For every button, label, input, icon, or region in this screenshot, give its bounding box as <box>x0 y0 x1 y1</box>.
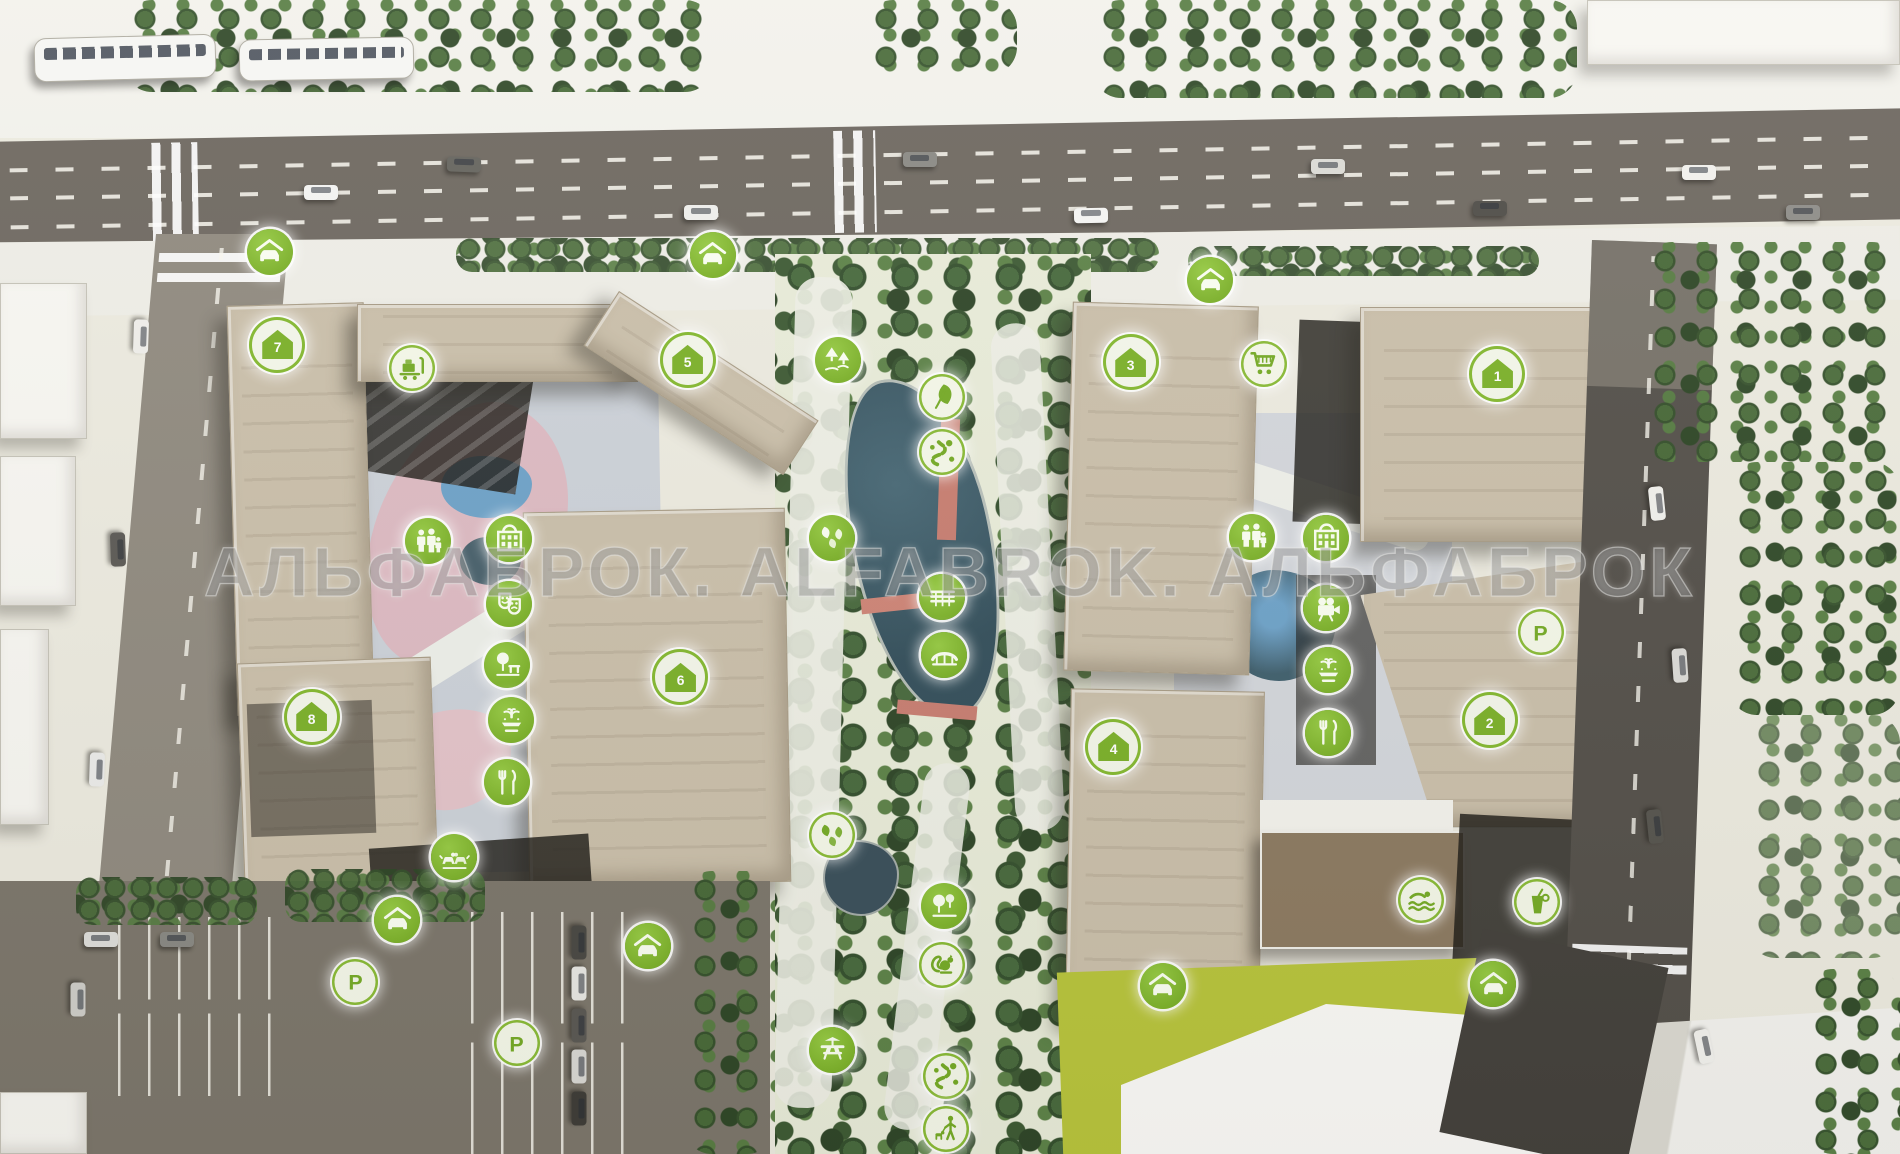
marker-covered-parking <box>1470 961 1516 1007</box>
marker-fountain <box>1305 647 1351 693</box>
marker-building-8: 8 <box>284 689 340 745</box>
marker-trail <box>923 1053 969 1099</box>
svg-text:3: 3 <box>1127 357 1135 373</box>
marker-trail <box>919 429 965 475</box>
marker-building-3: 3 <box>1103 334 1159 390</box>
marker-building-2: 2 <box>1462 692 1518 748</box>
marker-dog-walk <box>923 1106 969 1152</box>
svg-text:P: P <box>510 1032 524 1056</box>
marker-bridge <box>921 632 967 678</box>
marker-covered-parking <box>374 897 420 943</box>
svg-text:5: 5 <box>684 355 692 371</box>
marker-building-5: 5 <box>660 332 716 388</box>
marker-shopping-cart <box>1241 341 1287 387</box>
marker-covered-parking <box>1187 257 1233 303</box>
svg-text:P: P <box>1534 621 1548 645</box>
marker-building-1: 1 <box>1469 346 1525 402</box>
marker-building-6: 6 <box>652 649 708 705</box>
marker-restaurant <box>1305 710 1351 756</box>
marker-fountain <box>488 697 534 743</box>
marker-swimmer <box>1398 877 1444 923</box>
marker-dog-park <box>431 834 477 880</box>
marker-luggage-trolley <box>389 345 435 391</box>
masterplan-render: 75318642PPP АЛЬФАБРОК. ALFABROK. АЛЬФАБР… <box>0 0 1900 1154</box>
marker-covered-parking <box>247 229 293 275</box>
svg-text:6: 6 <box>676 672 684 688</box>
marker-covered-parking <box>690 232 736 278</box>
svg-text:1: 1 <box>1493 368 1501 384</box>
marker-restaurant <box>484 759 530 805</box>
marker-leaf <box>919 374 965 420</box>
marker-building-7: 7 <box>249 317 305 373</box>
marker-covered-parking <box>625 923 671 969</box>
marker-grove <box>921 883 967 929</box>
marker-picnic <box>809 1027 855 1073</box>
marker-parking: P <box>494 1020 540 1066</box>
marker-leaves <box>809 812 855 858</box>
marker-drink <box>1514 879 1560 925</box>
marker-squirrel <box>919 942 965 988</box>
svg-text:8: 8 <box>308 711 316 727</box>
marker-parking: P <box>1518 609 1564 655</box>
marker-tree-bench <box>484 642 530 688</box>
marker-covered-parking <box>1140 963 1186 1009</box>
svg-text:2: 2 <box>1486 715 1494 731</box>
svg-text:4: 4 <box>1110 741 1118 757</box>
svg-text:7: 7 <box>274 340 282 356</box>
svg-text:P: P <box>348 971 362 995</box>
marker-parking: P <box>332 959 378 1005</box>
watermark: АЛЬФАБРОК. ALFABROK. АЛЬФАБРОК <box>0 532 1900 612</box>
marker-forest <box>815 337 861 383</box>
marker-building-4: 4 <box>1085 719 1141 775</box>
